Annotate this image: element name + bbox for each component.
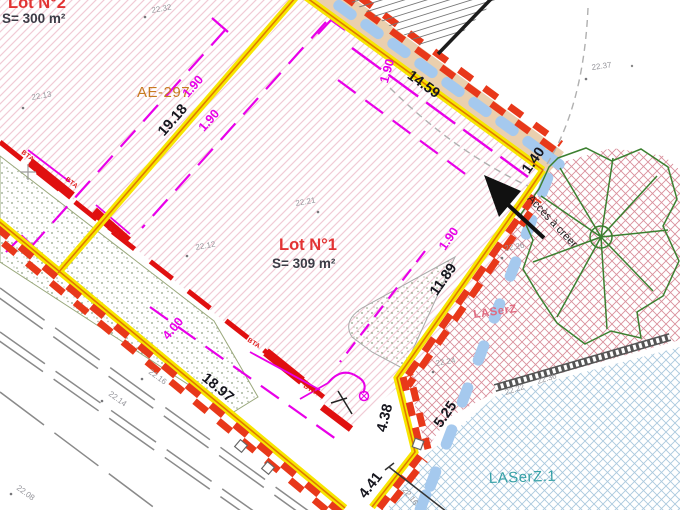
elevation-point-dot xyxy=(432,371,435,374)
plan-drawing: Lot N°2 S= 300 m² Lot N°1 S= 309 m² AE-2… xyxy=(0,0,680,510)
elevation-point-dot xyxy=(22,107,25,110)
lot2-area-label: S= 300 m² xyxy=(2,11,66,26)
lot1-label: Lot N°1 xyxy=(279,236,337,254)
elevation-point-dot xyxy=(317,211,320,214)
survey-dot xyxy=(631,65,633,67)
lot1-area-label: S= 309 m² xyxy=(272,256,336,271)
elevation-point-dot xyxy=(144,16,147,19)
elevation-point-dot xyxy=(186,255,189,258)
elevation-point-dot xyxy=(10,493,13,496)
elevation-point-dot xyxy=(501,257,504,260)
elevation-point-dot xyxy=(141,378,144,381)
zone-laserz1-label: LASerZ.1 xyxy=(489,468,557,487)
elevation-point-dot xyxy=(101,400,104,403)
cadastral-plan-canvas: Lot N°2 S= 300 m² Lot N°1 S= 309 m² AE-2… xyxy=(0,0,680,510)
elevation-point-dot xyxy=(585,78,588,81)
